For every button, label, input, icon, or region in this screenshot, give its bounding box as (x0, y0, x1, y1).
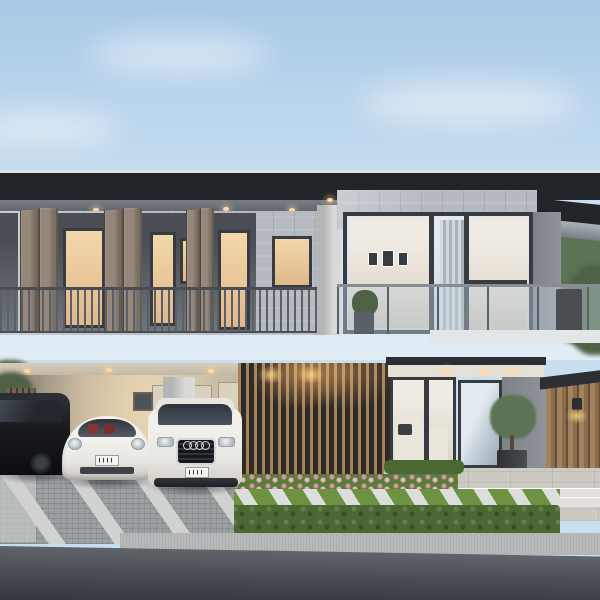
suv-headlight-left (157, 437, 174, 447)
coupe-license-plate (95, 455, 119, 466)
suv-license-plate (185, 467, 209, 478)
suv-windshield (158, 404, 232, 425)
balcony-railing-left (0, 287, 340, 333)
coupe-headlight-right (131, 438, 145, 450)
cloud (90, 35, 270, 75)
entrance-downlight-glow (258, 366, 284, 384)
carport-downlight (106, 368, 112, 372)
coupe-headlight-left (68, 438, 82, 450)
carport-downlight (24, 369, 30, 373)
sconce-glow (566, 408, 588, 424)
porch-ceiling (388, 365, 544, 377)
timber-clad-wall (546, 378, 600, 478)
house-rendering-scene (0, 0, 600, 600)
entrance-downlight-glow (298, 366, 324, 384)
picture-frame (368, 252, 378, 266)
picture-frame (398, 252, 408, 266)
topiary-foliage (490, 395, 536, 439)
dark-pillow (398, 424, 412, 435)
cloud (360, 80, 580, 126)
minivan-windows (0, 400, 62, 422)
coupe-red-seat (88, 424, 98, 434)
living-room-mullion (424, 377, 429, 471)
eave-downlight (327, 198, 333, 202)
upper-window-3 (272, 236, 312, 288)
carport-window (133, 392, 153, 411)
shrub-row (384, 460, 464, 474)
coupe-intake (80, 467, 134, 474)
picture-frame (382, 250, 394, 267)
floor-slab-left (0, 333, 440, 364)
carport-downlight (208, 369, 214, 373)
minivan-wheel (30, 452, 52, 474)
suv-headlight-right (218, 437, 235, 447)
porch-fascia (386, 357, 546, 365)
coupe-red-seat (104, 424, 114, 434)
suv-lower-bumper (154, 478, 238, 487)
asphalt-road (0, 546, 600, 600)
suv-badge-ring (201, 441, 210, 450)
porch-downlight (482, 370, 488, 374)
balcony-plant-pot (354, 312, 374, 334)
railing-cloth (556, 289, 582, 333)
porch-downlight (444, 369, 450, 373)
porch-downlight (509, 371, 515, 375)
